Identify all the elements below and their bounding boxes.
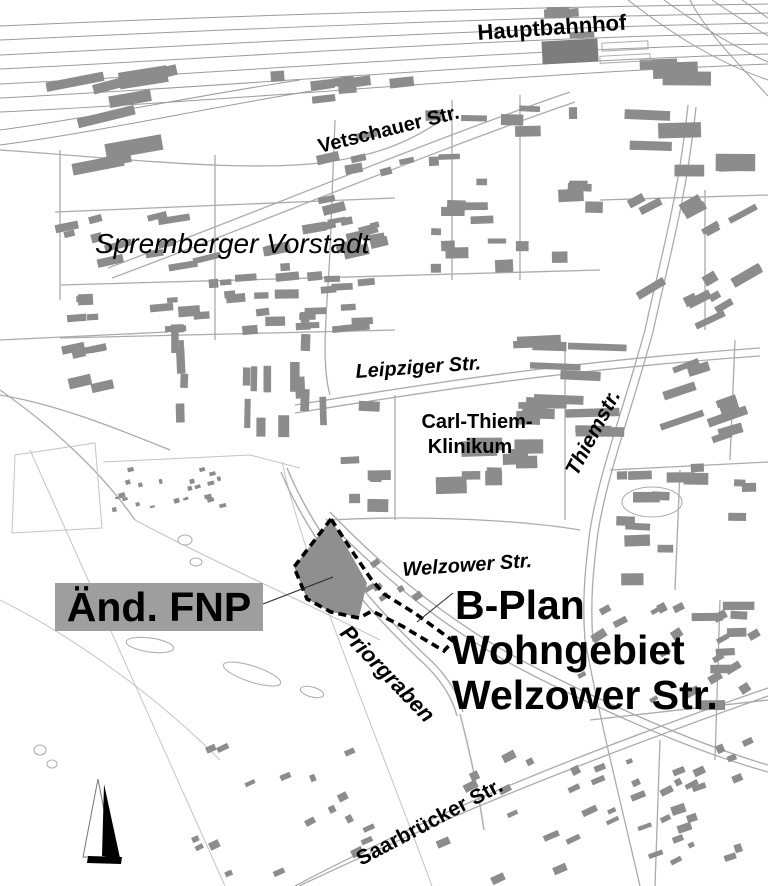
plan-area-polygon [294, 519, 367, 617]
label-vetschauer-str: Vetschauer Str. [316, 102, 462, 158]
fnp-label-box: Änd. FNP [55, 583, 263, 631]
label-spremberger-vorstadt: Spremberger Vorstadt [95, 228, 371, 259]
label-carl-thiem-line2: Klinikum [428, 436, 512, 458]
bplan-leader-line [417, 593, 453, 622]
map-canvas: Hauptbahnhof Vetschauer Str. Spremberger… [0, 0, 768, 886]
label-welzower-str: Welzower Str. [402, 550, 533, 581]
hauptbahnhof-building [541, 39, 650, 65]
street-network [0, 92, 768, 886]
buildings-layer [45, 7, 763, 885]
label-carl-thiem-line1: Carl-Thiem- [421, 411, 532, 433]
fnp-label-text: Änd. FNP [67, 584, 251, 630]
label-hauptbahnhof: Hauptbahnhof [477, 10, 628, 45]
north-arrow-icon [83, 779, 122, 864]
bplan-label-line2: Wohngebiet [451, 627, 685, 673]
bplan-label: B-Plan Wohngebiet Welzower Str. [451, 582, 718, 718]
bplan-label-line3: Welzower Str. [452, 672, 718, 718]
map-labels: Hauptbahnhof Vetschauer Str. Spremberger… [95, 10, 628, 871]
bplan-label-line1: B-Plan [455, 582, 585, 628]
label-leipziger-str: Leipziger Str. [355, 352, 482, 383]
